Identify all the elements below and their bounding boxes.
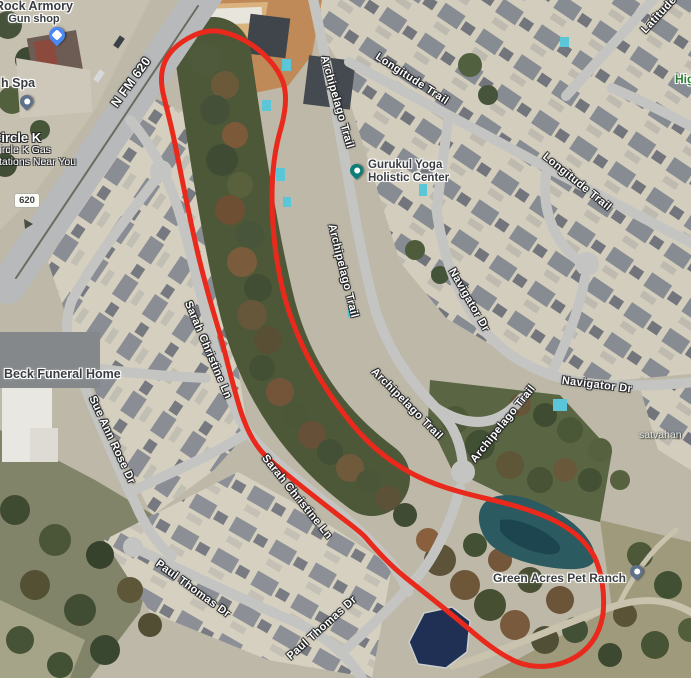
poi-circle-k[interactable]: Circle K Circle K Gas Stations Near You [0,131,76,168]
poi-beck-funeral-home[interactable]: Beck Funeral Home [4,368,121,381]
poi-circle-k-name[interactable]: Circle K [0,131,76,145]
route-620-shield: 620 [14,193,40,208]
poi-rock-armory[interactable]: Rock Armory Gun shop [0,0,82,26]
poi-rock-armory-sub: Gun shop [0,13,82,26]
satellite-map[interactable]: N FM 620 Latitude Longitude Trail Longit… [0,0,691,678]
poi-gurukul-line1[interactable]: Gurukul Yoga [368,159,449,172]
poi-satvahan[interactable]: satvahan [639,429,682,441]
poi-green-acres-pet-ranch[interactable]: Green Acres Pet Ranch [493,572,626,585]
poi-circle-k-sub2: Stations Near You [0,157,76,169]
poi-gurukul-line2: Holistic Center [368,172,449,185]
poi-rock-armory-name[interactable]: Rock Armory [0,0,82,13]
poi-circle-k-sub1: Circle K Gas [0,145,76,157]
poi-hig[interactable]: Hig [675,73,691,86]
poi-spa[interactable]: h Spa [1,77,35,90]
poi-gurukul-yoga[interactable]: Gurukul Yoga Holistic Center [368,159,449,185]
